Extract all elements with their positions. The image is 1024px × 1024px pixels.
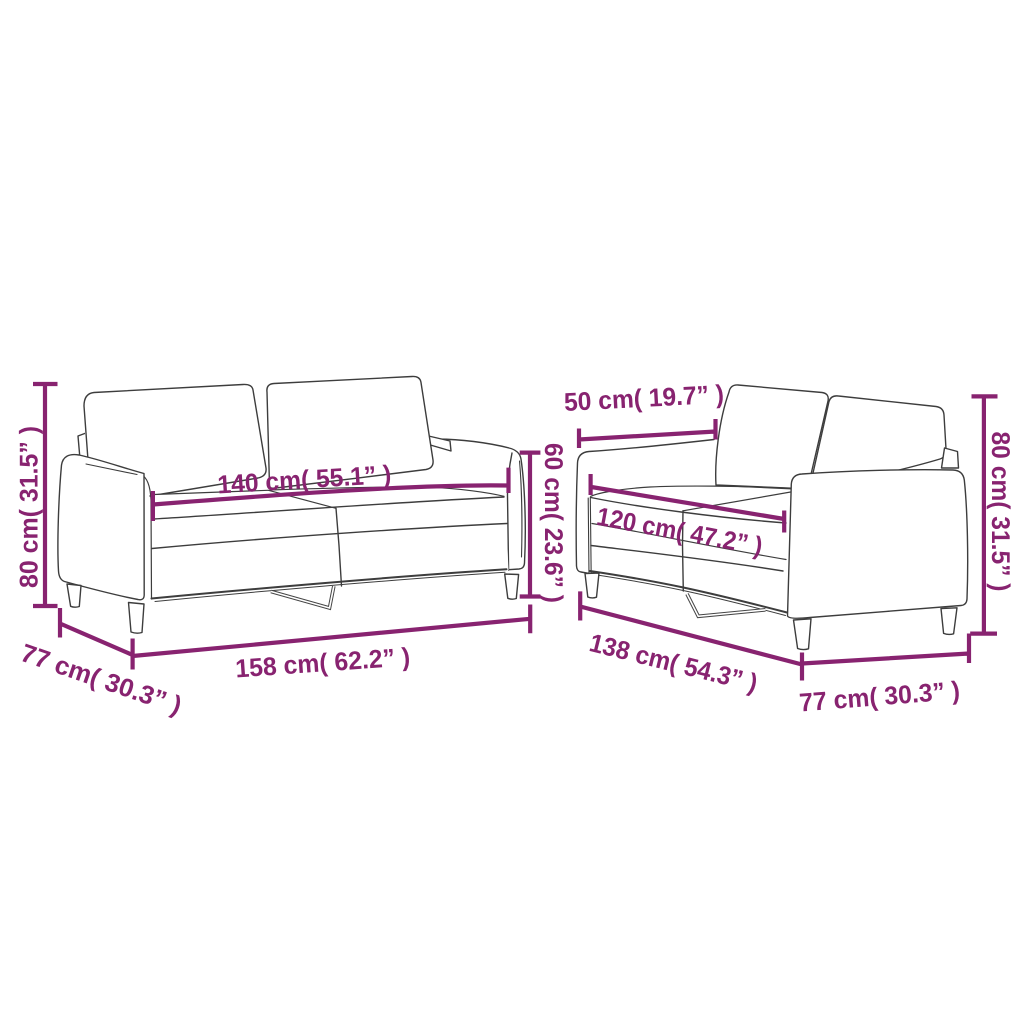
svg-text:80 cm( 31.5” ): 80 cm( 31.5” ) bbox=[986, 432, 1014, 592]
svg-text:60 cm( 23.6” ): 60 cm( 23.6” ) bbox=[539, 443, 567, 603]
svg-text:80 cm( 31.5” ): 80 cm( 31.5” ) bbox=[16, 426, 44, 588]
